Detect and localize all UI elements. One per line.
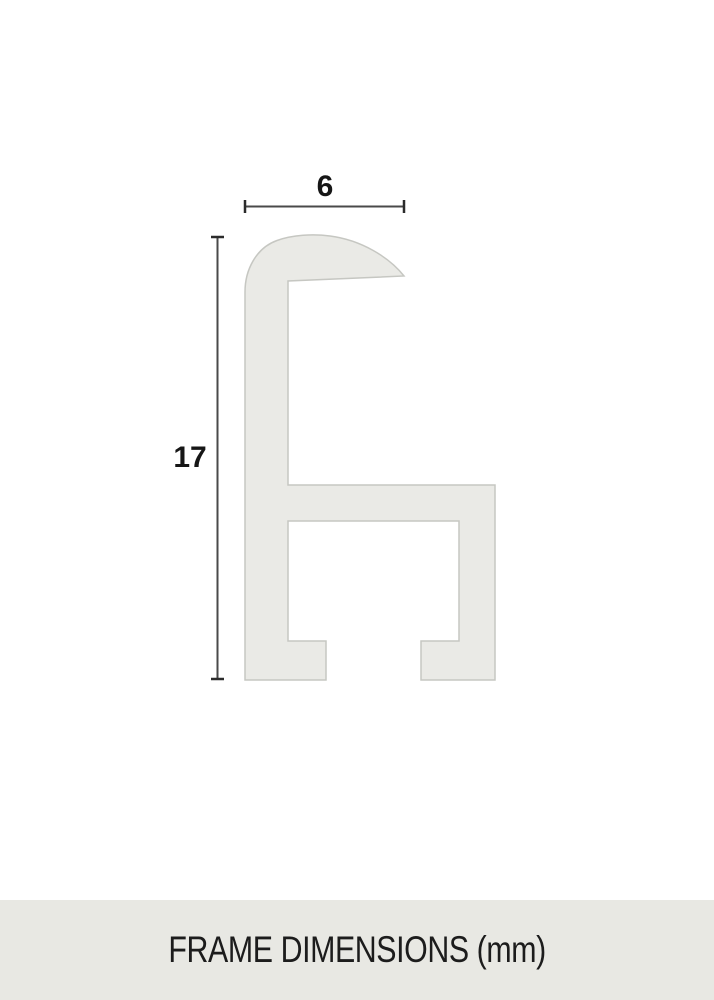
frame-dimension-diagram: 6 17 (0, 0, 714, 900)
height-dimension: 17 (173, 237, 224, 679)
footer-caption-text: FRAME DIMENSIONS (mm) (168, 929, 545, 971)
width-dimension-value: 6 (317, 170, 334, 203)
footer-caption-bar: FRAME DIMENSIONS (mm) (0, 900, 714, 1000)
frame-profile-shape (245, 235, 495, 680)
height-dimension-value: 17 (173, 441, 206, 474)
page: 6 17 FRAME DIMENSIONS (mm) (0, 0, 714, 1000)
width-dimension: 6 (245, 170, 404, 213)
